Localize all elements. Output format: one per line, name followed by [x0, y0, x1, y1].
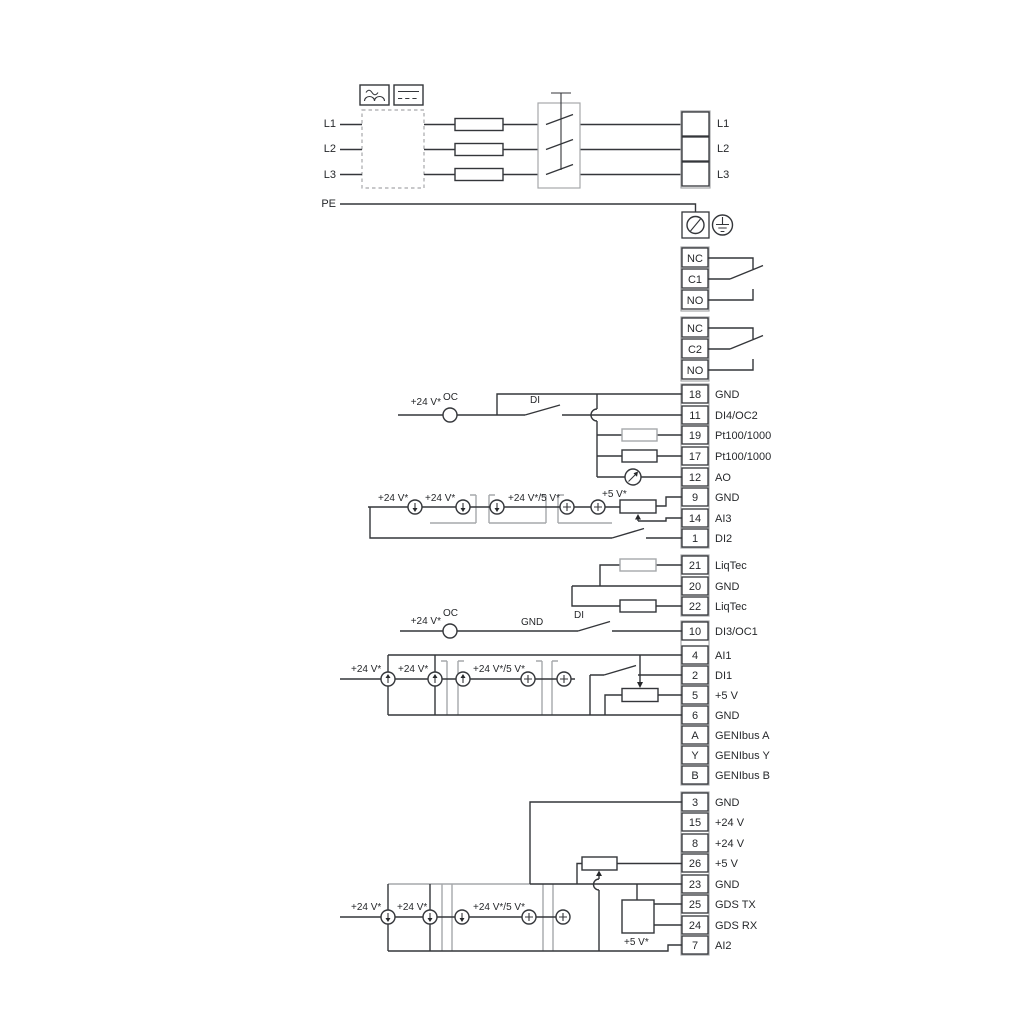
terminal-number: 19 — [689, 430, 701, 442]
terminal-block-a: 18 GND 11 DI4/OC2 19 Pt100/1000 17 Pt100… — [681, 384, 771, 548]
annotation-24v: +24 V* — [411, 397, 441, 408]
terminal-number: 9 — [692, 492, 698, 504]
terminal-label: GND — [715, 797, 740, 809]
terminal-number: 26 — [689, 858, 701, 870]
pt100-sensor-2 — [622, 450, 657, 462]
annotation-24v: +24 V* — [378, 493, 408, 504]
annotation-24v: +24 V* — [351, 902, 381, 913]
terminal-number: 11 — [689, 410, 700, 422]
terminal-number: 14 — [689, 513, 701, 525]
annotation-24v: +24 V* — [398, 664, 428, 675]
mains-out-l1: L1 — [717, 118, 729, 130]
terminal-block-b: 21 LiqTec 20 GND 22 LiqTec — [681, 555, 747, 616]
terminal-label: GND — [715, 389, 740, 401]
pt100-sensor-1 — [622, 429, 657, 441]
terminal-number: 18 — [689, 389, 701, 401]
terminal-number: 3 — [692, 797, 698, 809]
terminal-label: DI1 — [715, 670, 732, 682]
terminal-number: 12 — [689, 472, 701, 484]
terminal-number: 25 — [689, 899, 701, 911]
mains-section: L1 L2 L3 PE — [321, 85, 732, 238]
terminal-label: GND — [715, 710, 740, 722]
terminal-label: AI2 — [715, 940, 732, 952]
terminal-number: A — [691, 730, 699, 742]
mains-terminal-block: L1 L2 L3 — [681, 111, 729, 188]
terminal-label: +5 V — [715, 858, 739, 870]
voltage-source-icon — [556, 910, 570, 924]
annotation-di: DI — [530, 395, 540, 406]
relay1-block: NC C1 NO — [681, 247, 763, 311]
terminal-number: B — [691, 770, 698, 782]
terminal-number: 10 — [689, 626, 701, 638]
open-collector-icon — [443, 624, 457, 638]
voltage-source-icon — [521, 672, 535, 686]
terminal-number: 15 — [689, 817, 701, 829]
wiring-diagram: L1 L2 L3 PE — [0, 0, 1024, 1024]
terminal-label: LiqTec — [715, 601, 747, 613]
terminal-label: GND — [715, 879, 740, 891]
terminal-number: 21 — [689, 560, 701, 572]
voltage-source-icon — [557, 672, 571, 686]
relay2-nc: NC — [687, 323, 703, 335]
annotation-di: DI — [574, 610, 584, 621]
terminal-label: LiqTec — [715, 560, 747, 572]
dc-symbol-icon — [394, 85, 423, 105]
annotation-24v-5v: +24 V*/5 V* — [508, 493, 560, 504]
terminal-label: GENIbus Y — [715, 750, 770, 762]
annotation-5v: +5 V* — [624, 937, 649, 948]
mains-in-l3: L3 — [324, 169, 336, 181]
voltage-source-icon — [560, 500, 574, 514]
liqtec-sensor-1 — [620, 559, 656, 571]
terminal-number: 5 — [692, 690, 698, 702]
liqtec-circuit — [572, 559, 682, 612]
terminal-number: Y — [691, 750, 699, 762]
terminal-label: AI1 — [715, 650, 732, 662]
terminal-label: GDS RX — [715, 920, 758, 932]
fuse-l1 — [455, 119, 503, 131]
current-source-icon — [408, 500, 422, 514]
relay2-c2: C2 — [688, 344, 702, 356]
relay2-no: NO — [687, 365, 704, 377]
ac-symbol-icon — [360, 85, 389, 105]
ai1-di1-sensor-options: +24 V* +24 V* +24 V*/5 V* — [340, 655, 682, 715]
terminal-number: 7 — [692, 940, 698, 952]
annotation-5v: +5 V* — [602, 489, 627, 500]
current-source-icon — [428, 672, 442, 686]
mains-in-l1: L1 — [324, 118, 336, 130]
annotation-oc: OC — [443, 608, 458, 619]
ai2-gds-sensor-options: +24 V* +24 V* +24 V*/5 V* +5 V* — [340, 802, 682, 951]
terminal-label: DI2 — [715, 533, 732, 545]
optional-unit-box — [362, 110, 424, 188]
terminal-number: 6 — [692, 710, 698, 722]
annotation-oc: OC — [443, 392, 458, 403]
terminal-block-d: 3 GND 15 +24 V 8 +24 V 26 +5 V 23 GND 25… — [681, 792, 758, 955]
voltage-source-icon — [522, 910, 536, 924]
gds-sensor-box: +5 V* — [622, 884, 682, 948]
fuse-l3 — [455, 169, 503, 181]
terminal-number: 24 — [689, 920, 701, 932]
terminal-label: DI4/OC2 — [715, 410, 758, 422]
current-source-icon — [381, 672, 395, 686]
terminal-number: 17 — [689, 451, 701, 463]
terminal-number: 4 — [692, 650, 698, 662]
pe-terminal — [682, 212, 709, 238]
potentiometer-ai1 — [605, 655, 682, 715]
terminal-label: AI3 — [715, 513, 732, 525]
analog-meter-icon — [625, 469, 641, 485]
current-source-icon — [423, 910, 437, 924]
terminal-label: GENIbus B — [715, 770, 770, 782]
terminal-label: Pt100/1000 — [715, 430, 771, 442]
annotation-24v: +24 V* — [425, 493, 455, 504]
terminal-number: 23 — [689, 879, 701, 891]
liqtec-sensor-2 — [620, 600, 656, 612]
terminal-label: DI3/OC1 — [715, 626, 758, 638]
voltage-source-icon — [591, 500, 605, 514]
mains-out-l2: L2 — [717, 143, 729, 155]
terminal-block-c: 10 DI3/OC1 4 AI1 2 DI1 5 +5 V 6 GND A GE… — [681, 621, 770, 785]
di1-switch-blade — [604, 666, 636, 676]
open-collector-icon — [443, 408, 457, 422]
terminal-label: GND — [715, 581, 740, 593]
terminal-label: GND — [715, 492, 740, 504]
relay1-no: NO — [687, 295, 704, 307]
current-source-icon — [456, 672, 470, 686]
terminal-number: 2 — [692, 670, 698, 682]
annotation-24v: +24 V* — [351, 664, 381, 675]
terminal-label: Pt100/1000 — [715, 451, 771, 463]
potentiometer-ai3 — [620, 497, 682, 521]
di4-oc2-circuit: +24 V* OC DI — [398, 392, 682, 485]
annotation-24v-5v: +24 V*/5 V* — [473, 664, 525, 675]
annotation-24v: +24 V* — [397, 902, 427, 913]
wiring-diagram-page: L1 L2 L3 PE — [0, 0, 1024, 1024]
mains-in-pe: PE — [321, 198, 336, 210]
annotation-24v-5v: +24 V*/5 V* — [473, 902, 525, 913]
current-source-icon — [490, 500, 504, 514]
fuse-l2 — [455, 144, 503, 156]
relay2-block: NC C2 NO — [681, 317, 763, 381]
current-source-icon — [455, 910, 469, 924]
mains-wires — [340, 125, 696, 213]
terminal-label: AO — [715, 472, 731, 484]
relay2-contact — [708, 328, 763, 370]
earth-ground-icon — [713, 215, 733, 235]
ai3-di2-sensor-options: +24 V* +24 V* +24 V*/5 V* +5 V* — [368, 489, 682, 538]
mains-in-l2: L2 — [324, 143, 336, 155]
relay1-contact — [708, 258, 763, 300]
current-source-icon — [381, 910, 395, 924]
terminal-label: +5 V — [715, 690, 739, 702]
annotation-24v: +24 V* — [411, 616, 441, 627]
terminal-number: 20 — [689, 581, 701, 593]
terminal-number: 1 — [692, 533, 698, 545]
mains-switch — [538, 93, 580, 188]
terminal-label: GENIbus A — [715, 730, 770, 742]
annotation-gnd: GND — [521, 617, 543, 628]
terminal-label: +24 V — [715, 817, 745, 829]
mains-out-l3: L3 — [717, 169, 729, 181]
relay1-c1: C1 — [688, 274, 702, 286]
terminal-number: 8 — [692, 838, 698, 850]
terminal-label: +24 V — [715, 838, 745, 850]
terminal-label: GDS TX — [715, 899, 756, 911]
current-source-icon — [456, 500, 470, 514]
relay1-nc: NC — [687, 253, 703, 265]
terminal-number: 22 — [689, 601, 701, 613]
